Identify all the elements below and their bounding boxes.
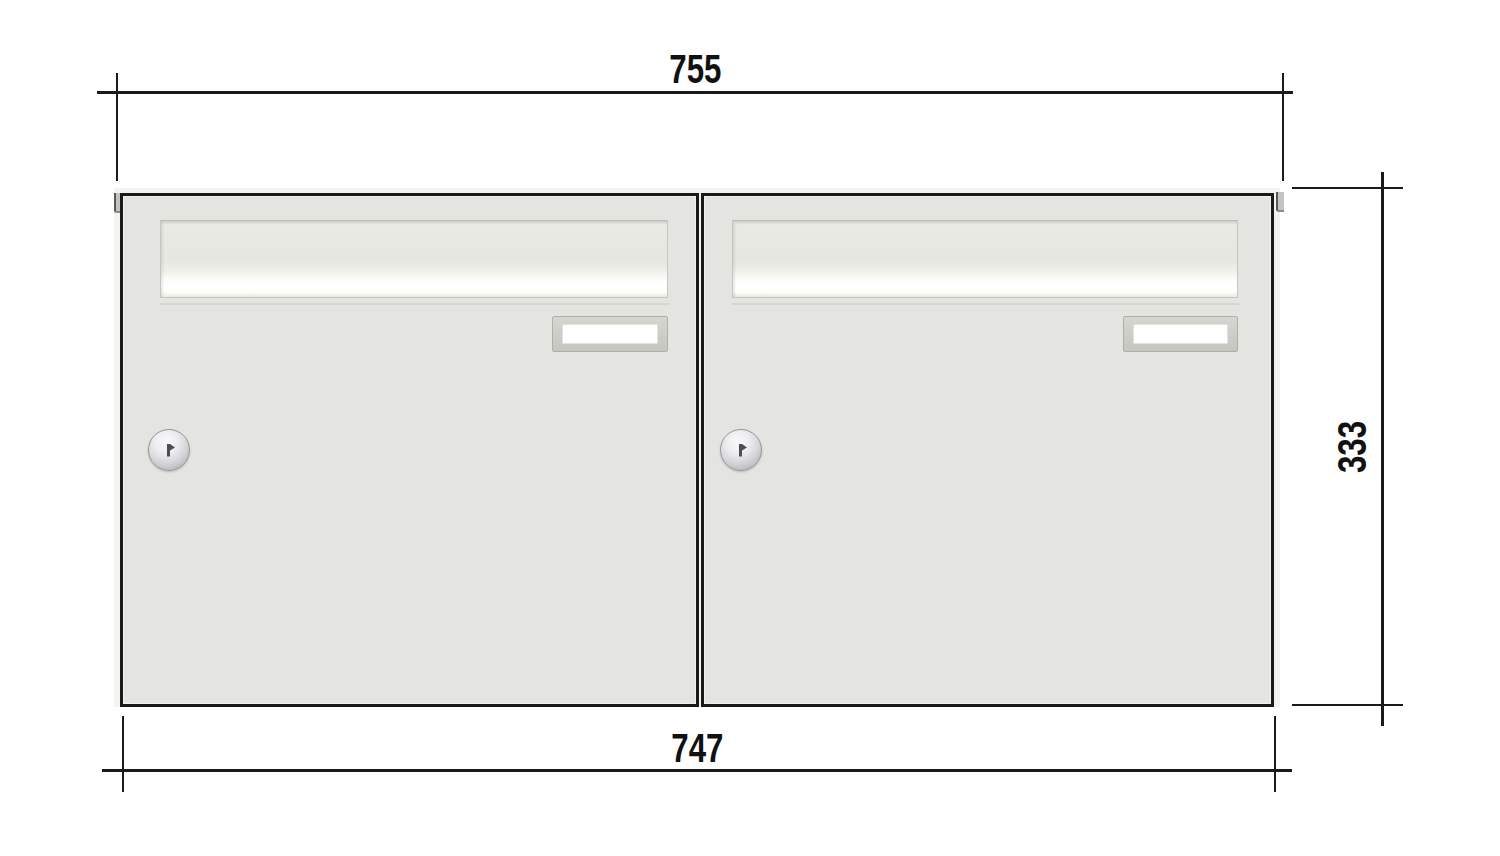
name-plate-right-window [1133,324,1228,344]
mail-flap-left-shadow-line [160,303,670,305]
technical-drawing: 755 747 333 [0,0,1500,856]
wall-mount-bracket-right-icon [1276,192,1284,212]
keyhole-icon [735,443,748,458]
name-plate-left-window [562,324,658,344]
dimension-label-top-width: 755 [97,49,1293,89]
keyhole-icon [163,443,176,458]
extension-line-height-top [1292,187,1403,189]
lock-cylinder-right [720,429,762,471]
extension-line-height-bottom [1292,704,1403,706]
lock-cylinder-left [148,429,190,471]
name-plate-left [552,316,668,352]
dimension-line-top-width [97,91,1293,94]
dimension-line-bottom-width [102,769,1292,772]
extension-line-bottom-left [122,716,124,792]
extension-line-bottom-right [1274,716,1276,792]
extension-line-top-left [116,73,118,181]
name-plate-right [1123,316,1238,352]
mail-flap-left [160,220,668,298]
extension-line-top-right [1282,73,1284,181]
dimension-line-height [1381,172,1384,726]
mail-flap-right [732,220,1238,298]
dimension-label-bottom-width: 747 [102,728,1292,768]
mail-flap-right-shadow-line [732,303,1240,305]
dimension-label-height: 333 [1332,414,1372,481]
